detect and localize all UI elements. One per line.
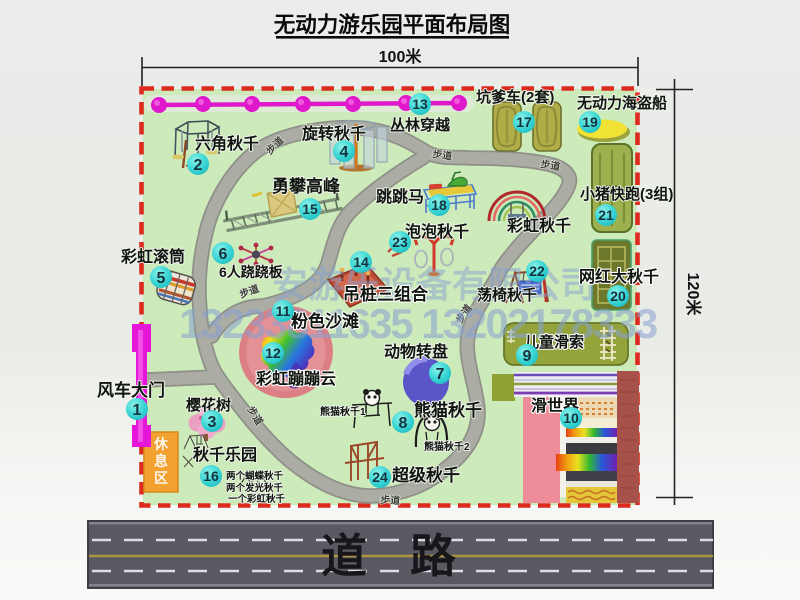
svg-text:小猪快跑(3组): 小猪快跑(3组) — [580, 185, 673, 203]
svg-text:六角秋千: 六角秋千 — [195, 134, 259, 153]
svg-text:13: 13 — [412, 96, 428, 112]
svg-text:2: 2 — [194, 157, 203, 174]
svg-text:14: 14 — [353, 254, 369, 270]
svg-text:步道: 步道 — [380, 493, 401, 507]
svg-text:19: 19 — [582, 114, 598, 130]
svg-text:6人跷跷板: 6人跷跷板 — [219, 264, 284, 280]
svg-text:无动力海盗船: 无动力海盗船 — [576, 94, 667, 112]
svg-text:8: 8 — [399, 415, 408, 432]
svg-text:熊猫秋千2: 熊猫秋千2 — [424, 440, 470, 453]
svg-text:4: 4 — [340, 144, 349, 161]
svg-text:彩虹滚筒: 彩虹滚筒 — [120, 247, 185, 266]
svg-text:网红大秋千: 网红大秋千 — [579, 267, 659, 286]
svg-text:6: 6 — [219, 246, 228, 263]
svg-text:22: 22 — [529, 263, 545, 279]
svg-text:超级秋千: 超级秋千 — [392, 465, 460, 485]
svg-text:10: 10 — [563, 410, 579, 426]
svg-text:5: 5 — [157, 270, 166, 287]
svg-text:勇攀高峰: 勇攀高峰 — [272, 176, 341, 196]
svg-text:休: 休 — [153, 436, 169, 452]
svg-text:荡椅秋千: 荡椅秋千 — [477, 286, 537, 304]
svg-text:9: 9 — [523, 348, 532, 365]
svg-text:吊桩三组合: 吊桩三组合 — [343, 284, 429, 304]
svg-text:息: 息 — [154, 453, 168, 469]
svg-text:熊猫秋千: 熊猫秋千 — [414, 400, 482, 420]
svg-text:丛林穿越: 丛林穿越 — [390, 116, 451, 134]
svg-text:3: 3 — [208, 414, 217, 431]
svg-text:旋转秋千: 旋转秋千 — [301, 124, 366, 143]
svg-text:11: 11 — [276, 303, 291, 319]
svg-text:道: 道 — [321, 530, 367, 582]
svg-text:23: 23 — [392, 234, 408, 250]
svg-text:7: 7 — [436, 366, 445, 383]
svg-text:秋千乐园: 秋千乐园 — [193, 445, 257, 464]
svg-text:彩虹秋千: 彩虹秋千 — [506, 216, 571, 235]
svg-text:无动力游乐园平面布局图: 无动力游乐园平面布局图 — [274, 12, 511, 37]
svg-text:20: 20 — [610, 288, 626, 304]
svg-text:区: 区 — [154, 470, 168, 486]
svg-text:18: 18 — [431, 197, 447, 213]
svg-text:彩虹蹦蹦云: 彩虹蹦蹦云 — [255, 369, 336, 388]
svg-text:动物转盘: 动物转盘 — [384, 342, 448, 361]
svg-text:两个发光秋千: 两个发光秋千 — [226, 482, 284, 494]
svg-text:跳跳马: 跳跳马 — [376, 187, 424, 206]
svg-text:泡泡秋千: 泡泡秋千 — [405, 222, 469, 241]
svg-text:一个彩虹秋千: 一个彩虹秋千 — [228, 493, 286, 505]
svg-text:120米: 120米 — [684, 273, 703, 317]
svg-text:熊猫秋千1: 熊猫秋千1 — [320, 405, 366, 418]
svg-text:16: 16 — [203, 468, 219, 484]
svg-text:15: 15 — [302, 201, 318, 217]
svg-text:17: 17 — [516, 114, 532, 130]
svg-text:路: 路 — [410, 530, 457, 582]
svg-text:1: 1 — [133, 402, 142, 419]
svg-text:12: 12 — [265, 345, 281, 361]
svg-text:13233811635 13202178333: 13233811635 13202178333 — [179, 300, 657, 347]
svg-text:100米: 100米 — [379, 47, 423, 66]
svg-text:风车大门: 风车大门 — [97, 380, 165, 400]
svg-text:21: 21 — [598, 207, 614, 223]
svg-text:24: 24 — [372, 469, 388, 485]
svg-text:两个蝴蝶秋千: 两个蝴蝶秋千 — [226, 470, 284, 482]
svg-text:粉色沙滩: 粉色沙滩 — [291, 311, 359, 331]
svg-text:坑爹车(2套): 坑爹车(2套) — [476, 88, 554, 106]
